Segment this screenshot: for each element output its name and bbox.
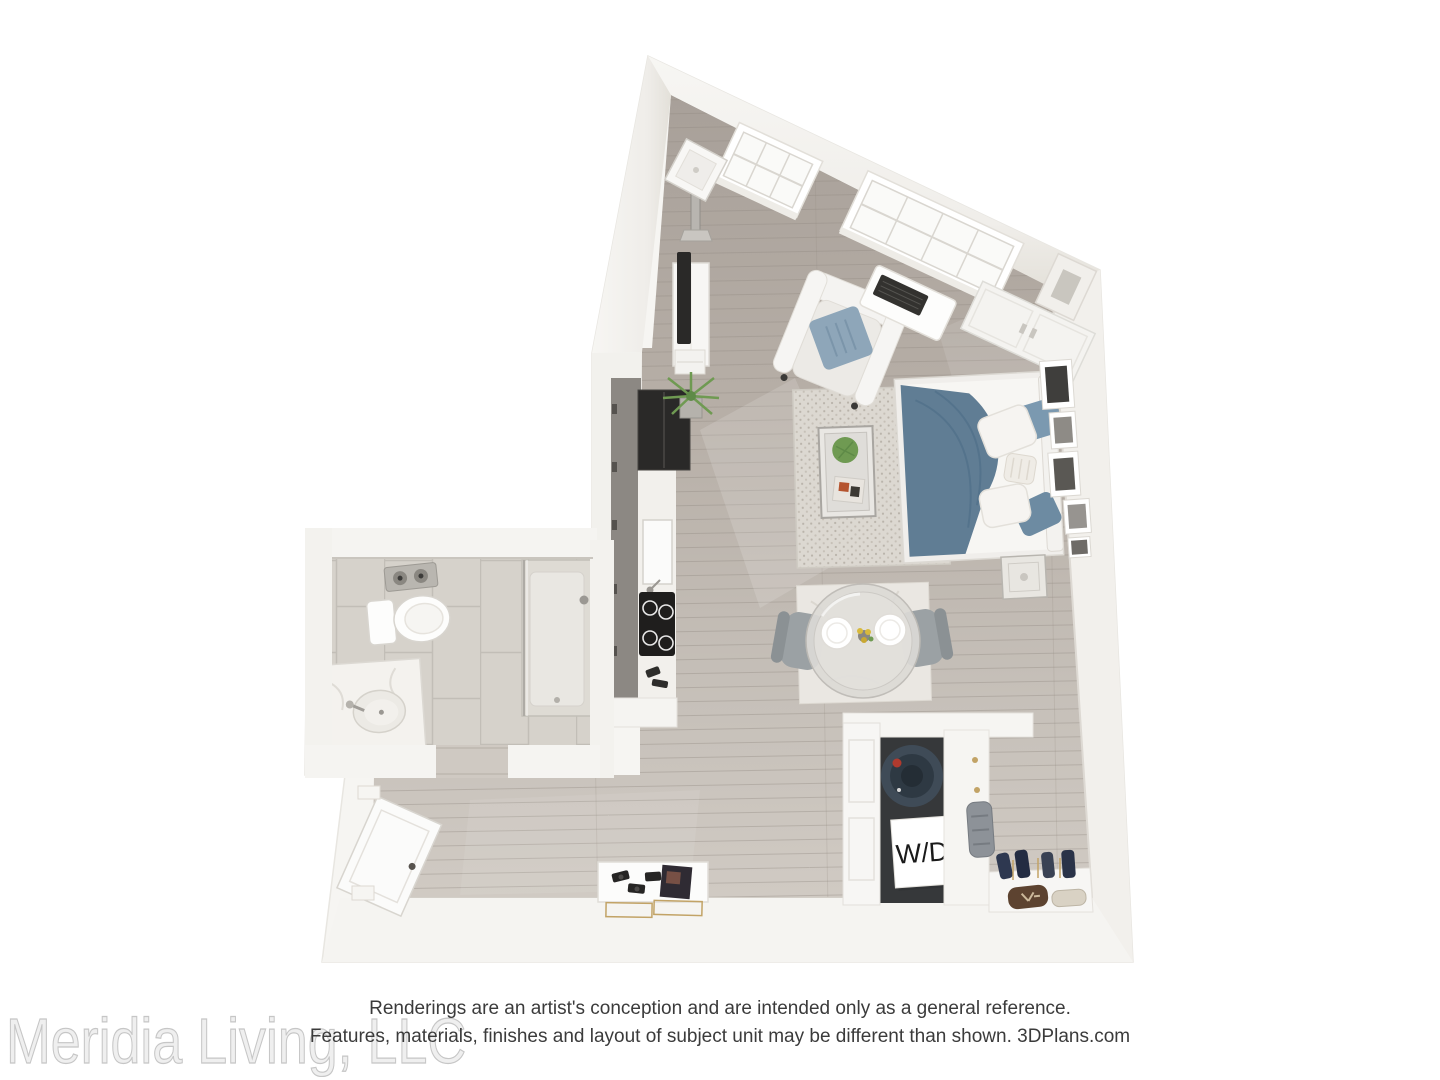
stacked-washer-dryer <box>881 745 943 807</box>
bathroom-north-wall <box>305 528 597 558</box>
bathroom-doorway <box>436 745 508 778</box>
place-setting-right <box>874 614 906 646</box>
place-setting-left <box>821 617 853 649</box>
floorplan-rendering: W/D <box>0 0 1440 1080</box>
entry-console-table <box>598 862 708 902</box>
bed-pillow-knit <box>1003 453 1037 485</box>
wall-mounted-tv <box>677 252 691 344</box>
gold-hook <box>974 787 980 793</box>
cream-clutch <box>1051 889 1086 907</box>
side-table <box>1001 555 1047 599</box>
dining-table <box>806 584 920 698</box>
bathroom-west-wall <box>305 528 332 775</box>
shower <box>522 560 592 716</box>
stove-cooktop <box>639 592 675 656</box>
hanging-bag <box>966 801 995 858</box>
floorplan-canvas: W/D <box>0 0 1440 1080</box>
shower-drain <box>554 697 560 703</box>
door-jamb-top <box>358 786 380 799</box>
wd-label: W/D <box>895 836 949 870</box>
washer-knob <box>893 759 902 768</box>
exhaust-fan <box>384 562 438 591</box>
bed-pillow-white-2 <box>978 482 1032 528</box>
wd-closet-door <box>843 723 880 905</box>
console-book <box>660 865 693 899</box>
disclaimer-line-1: Renderings are an artist's conception an… <box>0 995 1440 1023</box>
coffee-table <box>818 426 875 518</box>
bathroom <box>305 528 614 778</box>
bathroom-vanity <box>316 658 426 755</box>
disclaimer-line-2: Features, materials, finishes and layout… <box>0 1023 1440 1051</box>
bathroom-east-wall <box>590 540 614 778</box>
shower-head <box>580 596 589 605</box>
disclaimer-text: Renderings are an artist's conception an… <box>0 995 1440 1051</box>
magazine <box>832 476 864 503</box>
kitchen-sink <box>643 520 672 594</box>
door-jamb-bottom <box>352 886 374 900</box>
gold-hook <box>972 757 978 763</box>
